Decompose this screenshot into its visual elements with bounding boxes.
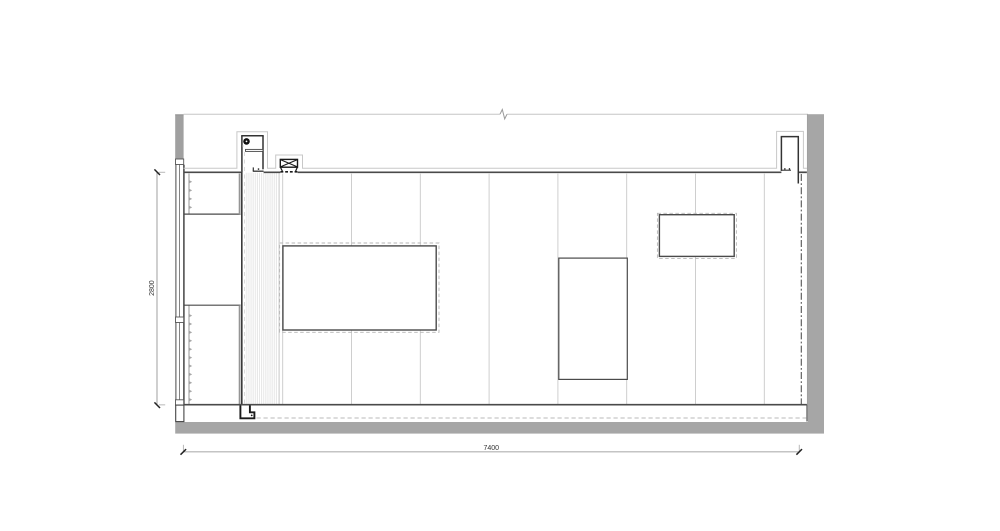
- svg-text:7400: 7400: [484, 445, 500, 452]
- svg-text:2800: 2800: [149, 280, 156, 296]
